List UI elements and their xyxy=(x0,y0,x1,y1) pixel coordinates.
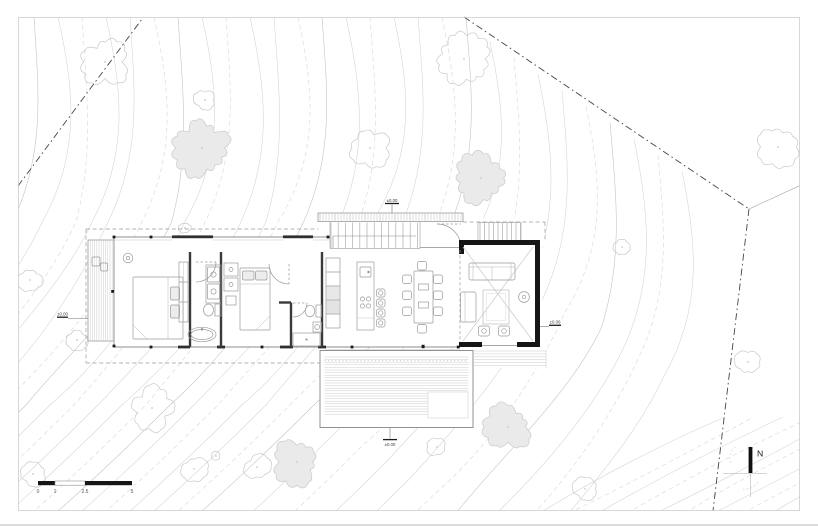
elevation-marker-east: ±0.00 xyxy=(540,320,561,327)
living-room-floor xyxy=(458,240,542,348)
elevation-label: ±0.00 xyxy=(387,198,398,203)
deck-inset xyxy=(428,392,468,418)
scale-tick-label: 0 xyxy=(37,489,40,495)
site-plan-drawing: ±0.00 ±0.00 ±0.00 ±0.00 N 0 1 xyxy=(0,0,818,529)
north-needle-icon xyxy=(749,447,753,473)
footer-divider xyxy=(0,524,818,526)
elevation-label: ±0.00 xyxy=(57,311,68,316)
entry-floor xyxy=(318,213,463,249)
scale-tick-label: 1 xyxy=(54,489,57,495)
scale-bar: 0 1 2.5 5 xyxy=(37,481,134,495)
elevation-label: ±0.00 xyxy=(385,442,396,447)
elevation-label: ±0.00 xyxy=(550,320,561,325)
elevation-marker-deck: ±0.00 xyxy=(383,428,397,447)
fence-line xyxy=(749,186,800,210)
sliding-door-north-1 xyxy=(172,235,213,238)
main-wing-floor xyxy=(114,237,460,347)
north-label: N xyxy=(757,449,763,459)
site-plan-page: ±0.00 ±0.00 ±0.00 ±0.00 N 0 1 xyxy=(0,0,818,529)
elevation-marker-entry: ±0.00 xyxy=(385,198,399,213)
sliding-door-north-2 xyxy=(283,235,313,238)
scale-tick-label: 2.5 xyxy=(82,489,89,495)
scale-tick-label: 5 xyxy=(131,489,134,495)
house-plan xyxy=(86,213,547,428)
